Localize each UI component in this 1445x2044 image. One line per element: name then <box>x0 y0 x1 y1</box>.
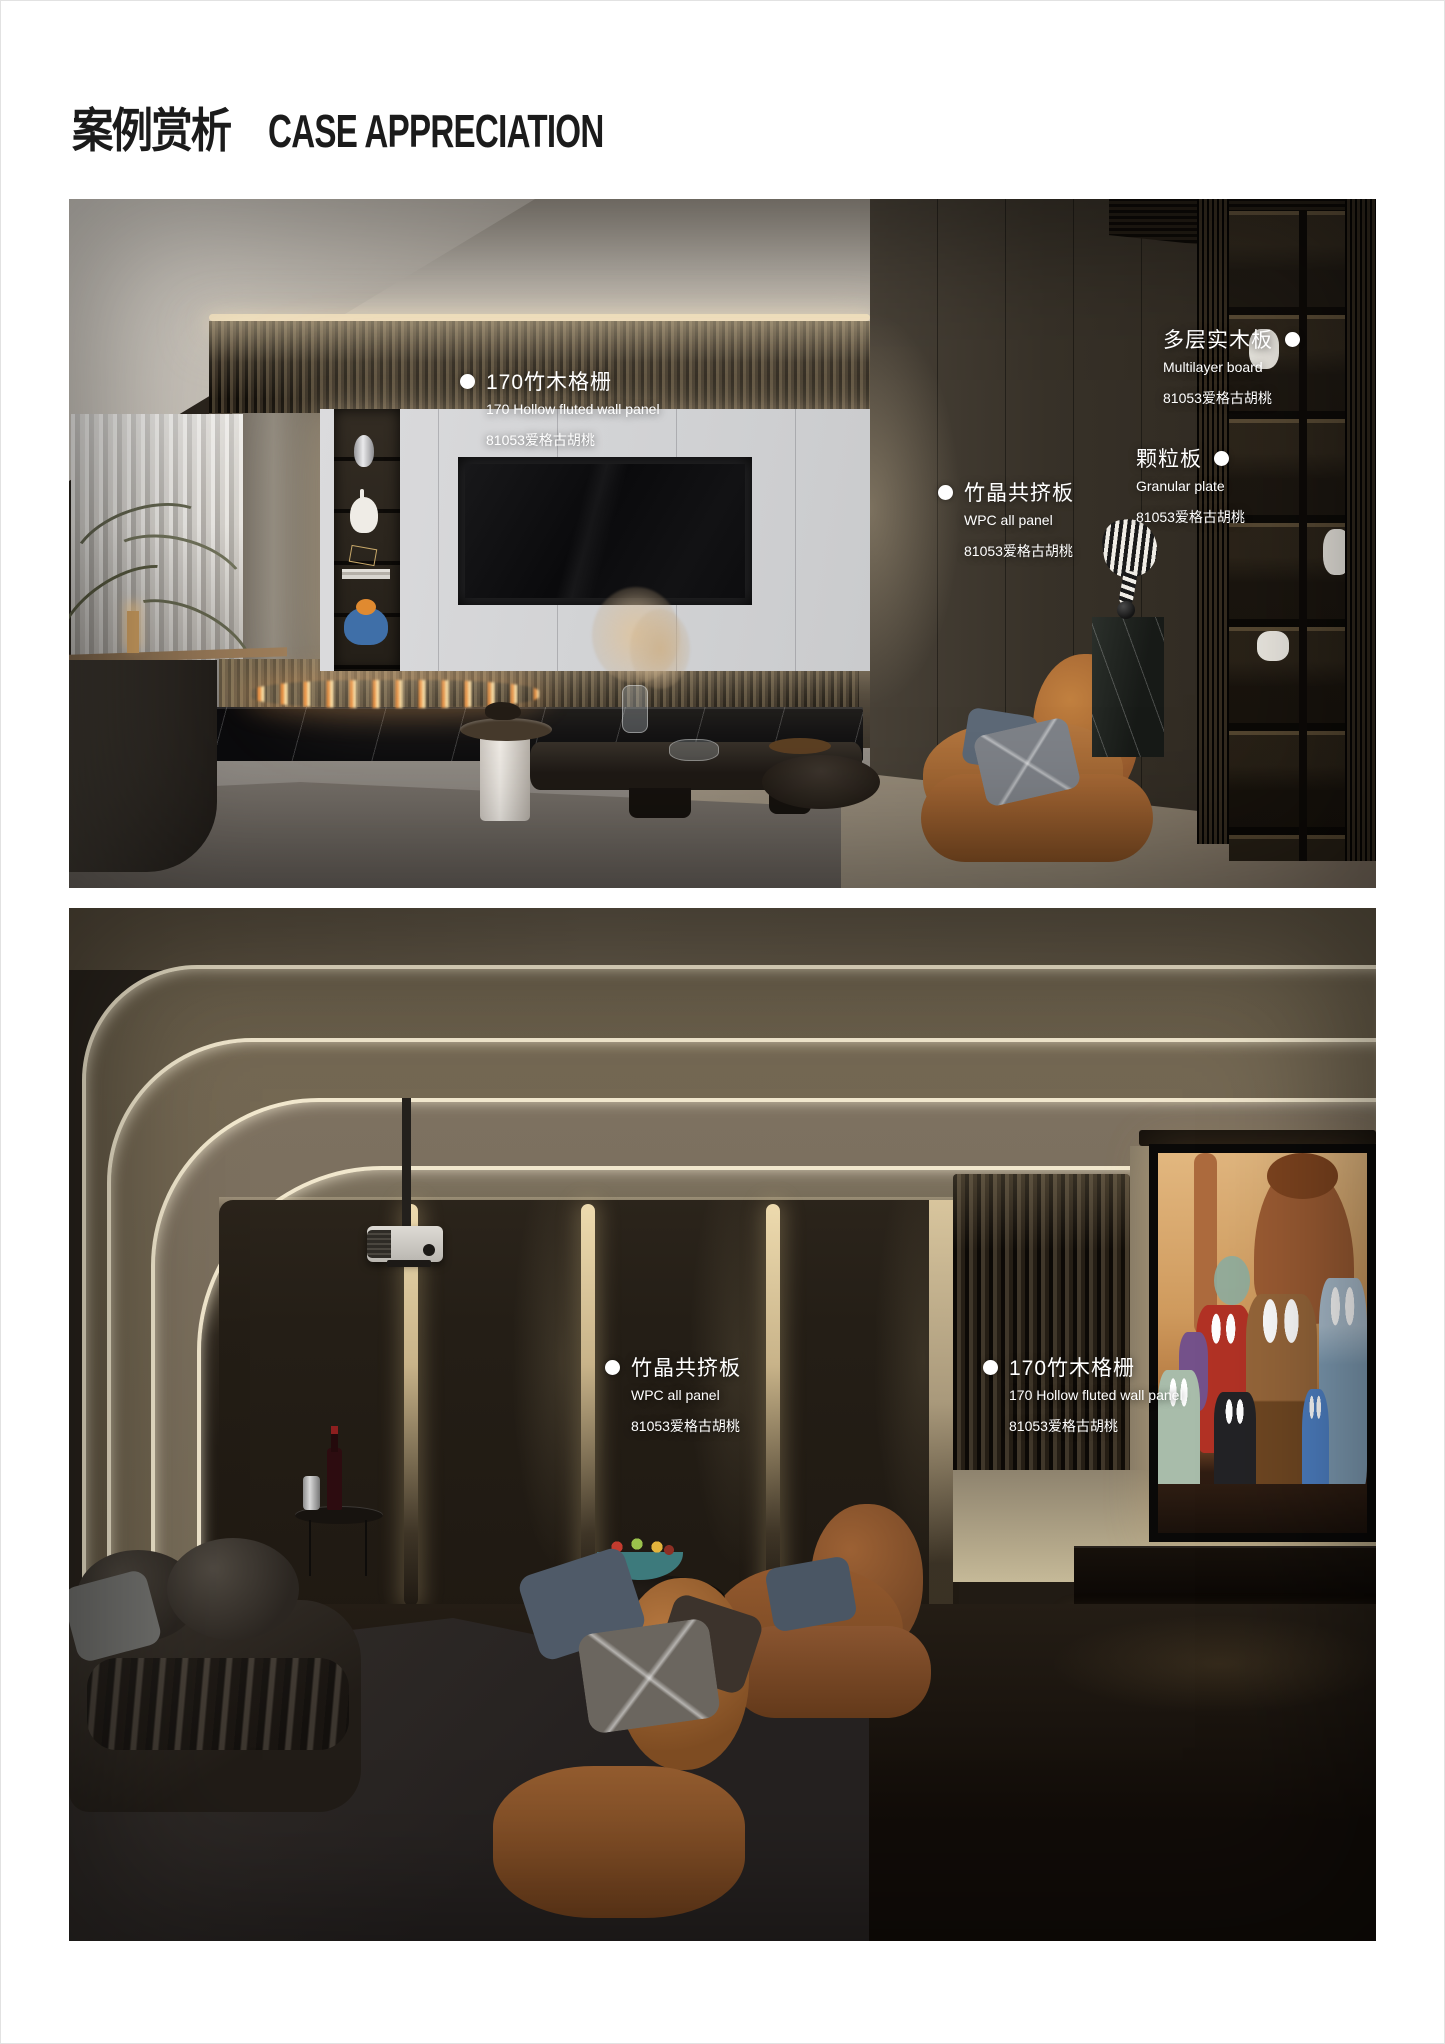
callout-label: 多层实木板 <box>1163 324 1273 354</box>
leather-sofa <box>69 1538 369 1838</box>
decor-tray <box>460 718 552 741</box>
projector <box>367 1226 443 1262</box>
projector-lens <box>423 1244 435 1256</box>
callout-label: 竹晶共挤板 <box>964 477 1074 507</box>
cocktail-shaker <box>303 1476 320 1510</box>
striped-figurine <box>1095 513 1165 621</box>
callout-material-code: 81053爱格古胡桃 <box>486 430 660 450</box>
elephant-figurine <box>344 607 388 645</box>
callout-sublabel: WPC all panel <box>631 1387 741 1403</box>
projector-mount <box>387 1260 431 1267</box>
glass-vase <box>622 685 648 733</box>
tv-screen <box>465 464 745 598</box>
callout-body: Multilayer board 81053爱格古胡桃 <box>1163 359 1300 408</box>
callout-body: 170 Hollow fluted wall panel 81053爱格古胡桃 <box>486 401 660 450</box>
callout-dot-icon <box>983 1360 998 1375</box>
wooden-bowl <box>769 738 831 754</box>
page-title-english: CASE APPRECIATION <box>268 104 604 158</box>
wine-bottle-cap <box>331 1426 338 1434</box>
figurine-ball <box>1117 601 1135 619</box>
callout-label: 颗粒板 <box>1136 443 1202 473</box>
callout-material-code: 81053爱格古胡桃 <box>1163 388 1300 408</box>
callout-sublabel: 170 Hollow fluted wall panel <box>486 401 660 417</box>
callout-sublabel: Granular plate <box>1136 478 1245 494</box>
gold-wire-decor <box>349 545 378 566</box>
figurine-head <box>356 599 376 615</box>
tv-recess <box>458 457 752 605</box>
callout-dot-icon <box>1285 332 1300 347</box>
callout-row: 170竹木格栅 <box>983 1352 1183 1382</box>
callout-sublabel: WPC all panel <box>964 512 1074 528</box>
callout-p1-wpc-panel: 竹晶共挤板 WPC all panel 81053爱格古胡桃 <box>938 477 1074 561</box>
fluted-slat-column <box>1345 199 1376 861</box>
callout-body: Granular plate 81053爱格古胡桃 <box>1136 478 1245 527</box>
callout-p1-granular-plate: 颗粒板 Granular plate 81053爱格古胡桃 <box>1136 443 1245 527</box>
callout-dot-icon <box>460 374 475 389</box>
callout-row: 颗粒板 <box>1136 443 1245 473</box>
page-title: 案例赏析 CASE APPRECIATION <box>72 92 734 161</box>
callout-row: 170竹木格栅 <box>460 366 660 396</box>
callout-sublabel: Multilayer board <box>1163 359 1300 375</box>
callout-body: 170 Hollow fluted wall panel 81053爱格古胡桃 <box>1009 1387 1183 1436</box>
movie-road <box>1158 1484 1367 1533</box>
shelf-divider <box>1299 211 1307 861</box>
bull-sculpture <box>485 702 521 720</box>
book-stack <box>342 569 390 579</box>
canyon-rock-cap <box>1267 1153 1338 1199</box>
glass-sculpture <box>669 739 719 761</box>
sofa-seat-ridges <box>87 1658 349 1750</box>
bean-bag-lounger-center <box>465 1568 769 1941</box>
callout-dot-icon <box>1214 451 1229 466</box>
marble-pedestal <box>1092 617 1164 757</box>
marble-cylinder-side-table <box>480 731 530 821</box>
callout-row: 竹晶共挤板 <box>605 1352 741 1382</box>
silver-vase-decor <box>354 435 374 467</box>
pampas-grass-vase <box>574 587 699 742</box>
candle <box>127 611 139 653</box>
callout-label: 竹晶共挤板 <box>631 1352 741 1382</box>
wine-bottle-neck <box>331 1432 338 1452</box>
ceiling-top-band <box>69 908 1376 970</box>
gray-x-pillow <box>577 1617 722 1734</box>
case-photo-living-room <box>69 199 1376 888</box>
callout-p1-fluted-panel: 170竹木格栅 170 Hollow fluted wall panel 810… <box>460 366 660 450</box>
callout-label: 170竹木格栅 <box>486 366 612 396</box>
callout-material-code: 81053爱格古胡桃 <box>1136 507 1245 527</box>
round-stool-table <box>762 755 880 809</box>
figurine-ear <box>360 489 364 501</box>
lounger-seat <box>493 1766 745 1918</box>
callout-p2-fluted-panel: 170竹木格栅 170 Hollow fluted wall panel 810… <box>983 1352 1183 1436</box>
page-title-chinese: 案例赏析 <box>72 92 230 161</box>
callout-dot-icon <box>605 1360 620 1375</box>
display-niche <box>334 409 400 671</box>
callout-material-code: 81053爱格古胡桃 <box>631 1416 741 1436</box>
callout-row: 多层实木板 <box>1163 324 1300 354</box>
lit-wall-sliver <box>929 1200 953 1604</box>
pampas-plume <box>630 609 690 689</box>
callout-sublabel: 170 Hollow fluted wall panel <box>1009 1387 1183 1403</box>
callout-material-code: 81053爱格古胡桃 <box>1009 1416 1183 1436</box>
callout-body: WPC all panel 81053爱格古胡桃 <box>631 1387 741 1436</box>
shelf-decor-object <box>1257 631 1289 661</box>
callout-dot-icon <box>938 485 953 500</box>
console-desk-base <box>69 660 217 872</box>
brochure-page: 案例赏析 CASE APPRECIATION <box>0 0 1445 2044</box>
callout-p2-wpc-panel: 竹晶共挤板 WPC all panel 81053爱格古胡桃 <box>605 1352 741 1436</box>
callout-p1-multilayer-board: 多层实木板 Multilayer board 81053爱格古胡桃 <box>1163 324 1300 408</box>
movie-sign <box>1214 1256 1250 1305</box>
panel-light-gap <box>581 1204 595 1606</box>
projector-pole <box>402 1098 411 1230</box>
callout-label: 170竹木格栅 <box>1009 1352 1135 1382</box>
projector-grill <box>367 1230 391 1258</box>
cove-light-strip <box>209 314 870 321</box>
coffee-table-leg <box>629 788 691 818</box>
projection-screen <box>1149 1144 1376 1542</box>
callout-material-code: 81053爱格古胡桃 <box>964 541 1074 561</box>
bunny-figurine <box>350 497 378 533</box>
callout-row: 竹晶共挤板 <box>938 477 1074 507</box>
sofa-back-cushion <box>267 1560 359 1652</box>
callout-body: WPC all panel 81053爱格古胡桃 <box>964 512 1074 561</box>
wine-bottle <box>327 1448 342 1510</box>
